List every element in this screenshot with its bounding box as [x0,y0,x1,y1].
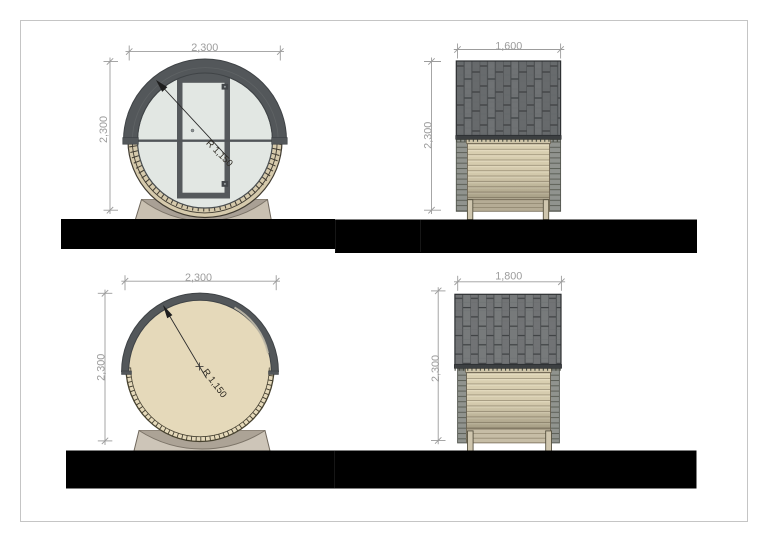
svg-text:1,800: 1,800 [495,270,522,282]
svg-text:2,300: 2,300 [423,122,435,149]
svg-text:2,300: 2,300 [430,355,442,382]
svg-text:2,300: 2,300 [95,354,107,381]
svg-text:2,300: 2,300 [98,116,110,143]
svg-text:1,600: 1,600 [495,40,522,52]
svg-text:2,300: 2,300 [191,42,218,54]
svg-text:2,300: 2,300 [185,272,212,284]
